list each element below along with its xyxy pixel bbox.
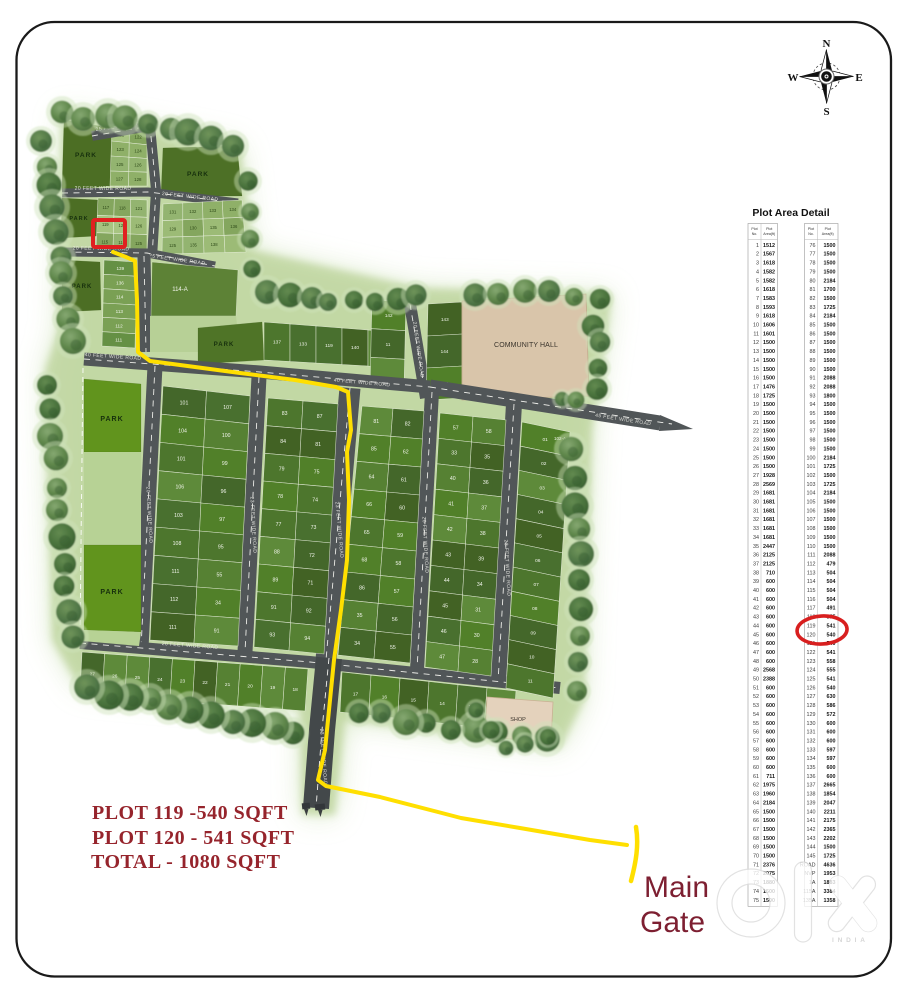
svg-text:26: 26 bbox=[753, 464, 759, 470]
svg-text:491: 491 bbox=[827, 606, 836, 612]
svg-text:6: 6 bbox=[756, 287, 759, 293]
svg-text:74: 74 bbox=[312, 497, 318, 503]
svg-text:600: 600 bbox=[766, 623, 775, 629]
svg-text:2376: 2376 bbox=[763, 862, 775, 868]
svg-text:92: 92 bbox=[810, 385, 816, 391]
svg-text:1601: 1601 bbox=[763, 331, 775, 337]
svg-text:62: 62 bbox=[403, 449, 409, 455]
svg-text:34: 34 bbox=[354, 641, 360, 647]
svg-text:479: 479 bbox=[827, 562, 836, 568]
svg-text:16: 16 bbox=[753, 376, 759, 382]
svg-text:63: 63 bbox=[753, 792, 759, 798]
svg-text:93: 93 bbox=[810, 393, 816, 399]
svg-text:1681: 1681 bbox=[763, 535, 775, 541]
svg-text:47: 47 bbox=[753, 650, 759, 656]
svg-text:121: 121 bbox=[135, 206, 143, 211]
svg-text:600: 600 bbox=[827, 765, 836, 771]
svg-text:600: 600 bbox=[766, 579, 775, 585]
svg-text:101: 101 bbox=[807, 464, 816, 470]
svg-text:28: 28 bbox=[753, 482, 759, 488]
svg-text:07: 07 bbox=[534, 582, 540, 588]
svg-text:710: 710 bbox=[766, 570, 775, 576]
svg-text:130: 130 bbox=[190, 226, 198, 231]
svg-text:600: 600 bbox=[827, 739, 836, 745]
svg-text:08: 08 bbox=[532, 606, 538, 612]
svg-text:102: 102 bbox=[807, 473, 816, 479]
svg-text:101: 101 bbox=[180, 400, 189, 406]
svg-text:504: 504 bbox=[827, 570, 836, 576]
svg-text:11: 11 bbox=[528, 679, 533, 685]
svg-text:600: 600 bbox=[766, 703, 775, 709]
svg-text:PARK: PARK bbox=[75, 152, 97, 159]
svg-text:11: 11 bbox=[386, 342, 391, 347]
svg-text:2568: 2568 bbox=[763, 668, 775, 674]
svg-text:2569: 2569 bbox=[763, 482, 775, 488]
svg-text:44: 44 bbox=[444, 578, 450, 584]
svg-text:572: 572 bbox=[827, 712, 836, 718]
svg-text:1725: 1725 bbox=[763, 393, 775, 399]
svg-text:2184: 2184 bbox=[824, 455, 836, 461]
svg-text:35: 35 bbox=[753, 544, 759, 550]
svg-text:1606: 1606 bbox=[763, 323, 775, 329]
svg-text:1500: 1500 bbox=[763, 809, 775, 815]
svg-text:1960: 1960 bbox=[763, 792, 775, 798]
svg-text:19: 19 bbox=[270, 685, 276, 691]
svg-text:54: 54 bbox=[753, 712, 759, 718]
svg-text:1500: 1500 bbox=[763, 845, 775, 851]
svg-text:104: 104 bbox=[807, 491, 816, 497]
svg-text:1500: 1500 bbox=[824, 402, 836, 408]
svg-text:2388: 2388 bbox=[763, 677, 775, 683]
svg-text:130: 130 bbox=[807, 721, 816, 727]
svg-text:61: 61 bbox=[401, 477, 407, 483]
svg-text:112: 112 bbox=[170, 597, 178, 603]
svg-text:131: 131 bbox=[169, 210, 177, 215]
svg-text:34: 34 bbox=[753, 535, 759, 541]
svg-text:57: 57 bbox=[753, 739, 759, 745]
svg-text:69: 69 bbox=[753, 845, 759, 851]
svg-text:PARK: PARK bbox=[69, 216, 88, 222]
svg-text:600: 600 bbox=[766, 685, 775, 691]
svg-text:135: 135 bbox=[807, 765, 816, 771]
svg-text:117: 117 bbox=[807, 606, 816, 612]
svg-text:71: 71 bbox=[308, 581, 314, 587]
svg-text:1500: 1500 bbox=[763, 438, 775, 444]
svg-text:11: 11 bbox=[753, 331, 759, 337]
svg-text:28: 28 bbox=[472, 659, 478, 665]
svg-text:33: 33 bbox=[753, 526, 759, 532]
svg-text:80: 80 bbox=[810, 278, 816, 284]
svg-text:1681: 1681 bbox=[763, 526, 775, 532]
svg-text:92: 92 bbox=[306, 608, 312, 614]
svg-text:84: 84 bbox=[280, 439, 286, 445]
svg-text:106: 106 bbox=[807, 508, 816, 514]
svg-text:127: 127 bbox=[116, 177, 124, 182]
svg-text:56: 56 bbox=[753, 730, 759, 736]
svg-text:PARK: PARK bbox=[100, 416, 123, 423]
svg-text:2184: 2184 bbox=[824, 278, 836, 284]
svg-text:99: 99 bbox=[222, 461, 228, 467]
svg-text:1500: 1500 bbox=[824, 296, 836, 302]
svg-text:123: 123 bbox=[117, 147, 125, 152]
svg-text:586: 586 bbox=[827, 703, 836, 709]
svg-text:59: 59 bbox=[753, 756, 759, 762]
svg-text:95: 95 bbox=[218, 545, 224, 551]
svg-text:105: 105 bbox=[807, 500, 816, 506]
svg-text:133: 133 bbox=[209, 208, 217, 213]
svg-text:97: 97 bbox=[219, 517, 225, 523]
svg-text:7: 7 bbox=[756, 296, 759, 302]
svg-text:75: 75 bbox=[314, 470, 320, 476]
svg-text:SHOP: SHOP bbox=[510, 717, 526, 723]
svg-text:44: 44 bbox=[753, 623, 759, 629]
svg-text:85: 85 bbox=[371, 447, 377, 453]
svg-text:113: 113 bbox=[807, 570, 816, 576]
svg-text:600: 600 bbox=[766, 632, 775, 638]
svg-text:94: 94 bbox=[304, 636, 310, 642]
svg-text:1500: 1500 bbox=[824, 446, 836, 452]
svg-text:119: 119 bbox=[807, 623, 816, 629]
svg-text:Plot: Plot bbox=[766, 227, 772, 231]
svg-text:02: 02 bbox=[541, 461, 547, 467]
svg-text:58: 58 bbox=[486, 429, 492, 435]
svg-text:600: 600 bbox=[766, 588, 775, 594]
svg-text:85: 85 bbox=[810, 323, 816, 329]
svg-text:100: 100 bbox=[807, 455, 816, 461]
svg-text:1500: 1500 bbox=[763, 420, 775, 426]
svg-text:112: 112 bbox=[807, 562, 816, 568]
svg-text:87: 87 bbox=[317, 414, 323, 420]
svg-text:55: 55 bbox=[217, 573, 223, 579]
svg-text:56: 56 bbox=[392, 617, 398, 623]
svg-text:66: 66 bbox=[366, 502, 372, 508]
svg-text:135: 135 bbox=[210, 225, 218, 230]
svg-text:57: 57 bbox=[453, 425, 459, 431]
svg-text:2047: 2047 bbox=[824, 800, 836, 806]
svg-text:2125: 2125 bbox=[763, 553, 775, 559]
svg-text:1500: 1500 bbox=[824, 269, 836, 275]
svg-text:55: 55 bbox=[753, 721, 759, 727]
svg-text:E: E bbox=[855, 72, 862, 84]
svg-text:144: 144 bbox=[807, 845, 816, 851]
svg-text:1500: 1500 bbox=[824, 473, 836, 479]
svg-text:143: 143 bbox=[441, 317, 449, 322]
svg-text:1500: 1500 bbox=[763, 836, 775, 842]
svg-text:4: 4 bbox=[756, 269, 759, 275]
svg-text:61: 61 bbox=[753, 774, 759, 780]
svg-text:1500: 1500 bbox=[824, 349, 836, 355]
svg-text:86: 86 bbox=[810, 331, 816, 337]
svg-text:541: 541 bbox=[827, 623, 836, 629]
svg-text:2184: 2184 bbox=[824, 491, 836, 497]
svg-text:47: 47 bbox=[439, 654, 445, 660]
svg-text:117: 117 bbox=[103, 205, 110, 210]
svg-text:20 FEET WIDE ROAD: 20 FEET WIDE ROAD bbox=[75, 186, 132, 192]
svg-text:1500: 1500 bbox=[824, 508, 836, 514]
svg-text:111: 111 bbox=[807, 553, 815, 559]
svg-text:20: 20 bbox=[247, 684, 253, 690]
svg-text:40: 40 bbox=[753, 588, 759, 594]
svg-text:114: 114 bbox=[807, 579, 816, 585]
svg-text:127: 127 bbox=[807, 694, 816, 700]
svg-text:124: 124 bbox=[807, 668, 816, 674]
svg-text:108: 108 bbox=[173, 541, 182, 547]
svg-text:76: 76 bbox=[810, 243, 816, 249]
svg-text:1500: 1500 bbox=[824, 517, 836, 523]
svg-text:141: 141 bbox=[807, 818, 816, 824]
svg-text:100: 100 bbox=[222, 433, 231, 439]
svg-text:558: 558 bbox=[827, 659, 836, 665]
svg-text:504: 504 bbox=[827, 597, 836, 603]
svg-text:INDIA: INDIA bbox=[832, 937, 869, 944]
svg-text:22: 22 bbox=[202, 680, 208, 686]
svg-text:34: 34 bbox=[477, 582, 483, 588]
svg-text:600: 600 bbox=[766, 765, 775, 771]
svg-text:1618: 1618 bbox=[763, 287, 775, 293]
svg-text:1500: 1500 bbox=[763, 376, 775, 382]
svg-text:21: 21 bbox=[753, 420, 759, 426]
svg-text:1854: 1854 bbox=[824, 792, 836, 798]
svg-text:43: 43 bbox=[753, 615, 759, 621]
svg-text:20: 20 bbox=[753, 411, 759, 417]
svg-text:1725: 1725 bbox=[824, 854, 836, 860]
svg-text:23: 23 bbox=[180, 678, 186, 684]
svg-text:1567: 1567 bbox=[763, 252, 775, 258]
svg-text:1500: 1500 bbox=[824, 429, 836, 435]
svg-text:39: 39 bbox=[478, 557, 484, 563]
svg-text:PARK: PARK bbox=[100, 589, 123, 596]
svg-text:Plot: Plot bbox=[808, 227, 814, 231]
svg-text:139: 139 bbox=[807, 800, 816, 806]
svg-text:1358: 1358 bbox=[824, 898, 836, 904]
svg-text:S: S bbox=[823, 106, 829, 118]
svg-text:128: 128 bbox=[134, 177, 142, 182]
svg-text:68: 68 bbox=[753, 836, 759, 842]
svg-text:57: 57 bbox=[394, 589, 400, 595]
svg-text:38: 38 bbox=[753, 570, 759, 576]
svg-text:1500: 1500 bbox=[763, 367, 775, 373]
svg-text:134: 134 bbox=[229, 207, 237, 212]
svg-text:600: 600 bbox=[766, 730, 775, 736]
svg-text:2125: 2125 bbox=[763, 562, 775, 568]
svg-text:Plot Area Detail: Plot Area Detail bbox=[752, 207, 829, 219]
svg-text:N: N bbox=[823, 38, 831, 50]
svg-text:1500: 1500 bbox=[763, 446, 775, 452]
svg-text:Plot: Plot bbox=[825, 227, 831, 231]
svg-text:1500: 1500 bbox=[824, 500, 836, 506]
svg-text:94: 94 bbox=[810, 402, 816, 408]
svg-text:600: 600 bbox=[766, 721, 775, 727]
svg-text:142: 142 bbox=[807, 827, 816, 833]
svg-text:1500: 1500 bbox=[763, 429, 775, 435]
svg-text:2088: 2088 bbox=[824, 376, 836, 382]
svg-text:72: 72 bbox=[309, 553, 315, 559]
svg-text:38: 38 bbox=[480, 531, 486, 537]
svg-text:1500: 1500 bbox=[763, 854, 775, 860]
svg-text:74: 74 bbox=[753, 889, 759, 895]
svg-text:51: 51 bbox=[753, 685, 759, 691]
svg-text:1582: 1582 bbox=[763, 269, 775, 275]
svg-text:1725: 1725 bbox=[824, 482, 836, 488]
svg-text:50: 50 bbox=[753, 677, 759, 683]
svg-text:138: 138 bbox=[807, 792, 816, 798]
svg-text:1500: 1500 bbox=[763, 340, 775, 346]
svg-text:600: 600 bbox=[766, 756, 775, 762]
svg-text:30: 30 bbox=[753, 500, 759, 506]
svg-text:600: 600 bbox=[827, 774, 836, 780]
svg-text:04: 04 bbox=[538, 509, 544, 515]
svg-text:23: 23 bbox=[753, 438, 759, 444]
svg-text:35: 35 bbox=[484, 454, 490, 460]
svg-text:36: 36 bbox=[753, 553, 759, 559]
svg-text:17: 17 bbox=[353, 691, 359, 697]
svg-text:18: 18 bbox=[753, 393, 759, 399]
svg-text:10: 10 bbox=[753, 323, 759, 329]
svg-text:43: 43 bbox=[445, 553, 451, 559]
svg-text:136: 136 bbox=[230, 224, 238, 229]
svg-text:65: 65 bbox=[753, 809, 759, 815]
svg-text:1953: 1953 bbox=[824, 871, 836, 877]
svg-text:01: 01 bbox=[543, 437, 549, 443]
svg-text:1500: 1500 bbox=[763, 464, 775, 470]
svg-text:27: 27 bbox=[753, 473, 759, 479]
svg-text:2088: 2088 bbox=[824, 385, 836, 391]
svg-text:88: 88 bbox=[810, 349, 816, 355]
svg-text:129: 129 bbox=[807, 712, 816, 718]
svg-text:86: 86 bbox=[359, 585, 365, 591]
svg-text:597: 597 bbox=[827, 747, 836, 753]
svg-text:140: 140 bbox=[807, 809, 816, 815]
svg-text:64: 64 bbox=[369, 474, 375, 480]
svg-text:Area(ft): Area(ft) bbox=[822, 232, 834, 236]
svg-text:1500: 1500 bbox=[824, 845, 836, 851]
svg-text:1500: 1500 bbox=[763, 349, 775, 355]
svg-text:5: 5 bbox=[756, 278, 759, 284]
svg-text:59: 59 bbox=[397, 533, 403, 539]
svg-text:1500: 1500 bbox=[824, 358, 836, 364]
svg-text:1618: 1618 bbox=[763, 314, 775, 320]
svg-text:No.: No. bbox=[808, 232, 814, 236]
svg-text:128: 128 bbox=[807, 703, 816, 709]
svg-text:600: 600 bbox=[766, 694, 775, 700]
svg-text:2447: 2447 bbox=[763, 544, 775, 550]
svg-text:600: 600 bbox=[766, 659, 775, 665]
svg-text:107: 107 bbox=[223, 405, 232, 411]
svg-text:58: 58 bbox=[753, 747, 759, 753]
svg-text:143: 143 bbox=[807, 836, 816, 842]
svg-text:108: 108 bbox=[807, 526, 816, 532]
svg-text:42: 42 bbox=[753, 606, 759, 612]
svg-text:1593: 1593 bbox=[763, 305, 775, 311]
svg-text:119: 119 bbox=[325, 343, 333, 349]
svg-text:134: 134 bbox=[807, 756, 816, 762]
svg-text:120: 120 bbox=[807, 632, 816, 638]
svg-text:45: 45 bbox=[442, 603, 448, 609]
svg-text:09: 09 bbox=[531, 630, 537, 636]
svg-text:1500: 1500 bbox=[824, 411, 836, 417]
svg-text:Gate: Gate bbox=[640, 906, 705, 939]
svg-text:83: 83 bbox=[282, 411, 288, 417]
svg-text:600: 600 bbox=[766, 650, 775, 656]
svg-text:115: 115 bbox=[101, 240, 108, 245]
svg-text:132: 132 bbox=[189, 209, 197, 214]
svg-text:600: 600 bbox=[766, 606, 775, 612]
svg-text:600: 600 bbox=[766, 597, 775, 603]
svg-text:60: 60 bbox=[399, 505, 405, 511]
svg-text:1500: 1500 bbox=[763, 402, 775, 408]
svg-text:2088: 2088 bbox=[824, 553, 836, 559]
svg-text:1582: 1582 bbox=[763, 278, 775, 284]
svg-text:107: 107 bbox=[807, 517, 816, 523]
svg-text:1681: 1681 bbox=[763, 508, 775, 514]
svg-text:124: 124 bbox=[134, 149, 142, 154]
svg-text:540: 540 bbox=[827, 685, 836, 691]
svg-text:139: 139 bbox=[116, 266, 124, 271]
svg-text:113: 113 bbox=[116, 309, 124, 314]
svg-text:630: 630 bbox=[827, 694, 836, 700]
svg-text:1500: 1500 bbox=[763, 411, 775, 417]
svg-text:2365: 2365 bbox=[824, 827, 836, 833]
svg-text:1725: 1725 bbox=[824, 464, 836, 470]
svg-text:81: 81 bbox=[810, 287, 816, 293]
svg-text:711: 711 bbox=[766, 774, 775, 780]
svg-text:101: 101 bbox=[177, 457, 186, 463]
svg-text:2184: 2184 bbox=[824, 314, 836, 320]
svg-text:06: 06 bbox=[535, 558, 541, 564]
svg-text:103: 103 bbox=[174, 513, 183, 519]
svg-text:Area(ft): Area(ft) bbox=[763, 232, 775, 236]
svg-text:1500: 1500 bbox=[763, 358, 775, 364]
svg-text:2211: 2211 bbox=[824, 809, 836, 815]
svg-text:66: 66 bbox=[753, 818, 759, 824]
svg-text:125: 125 bbox=[135, 241, 143, 246]
svg-text:62: 62 bbox=[753, 783, 759, 789]
svg-text:95: 95 bbox=[810, 411, 816, 417]
svg-text:87: 87 bbox=[810, 340, 816, 346]
svg-text:70: 70 bbox=[753, 854, 759, 860]
svg-text:600: 600 bbox=[766, 712, 775, 718]
svg-text:1476: 1476 bbox=[763, 385, 775, 391]
svg-text:1681: 1681 bbox=[763, 491, 775, 497]
svg-text:93: 93 bbox=[269, 633, 275, 639]
svg-text:45: 45 bbox=[753, 632, 759, 638]
svg-text:05: 05 bbox=[537, 534, 543, 540]
svg-text:89: 89 bbox=[810, 358, 816, 364]
svg-text:96: 96 bbox=[810, 420, 816, 426]
svg-text:109: 109 bbox=[807, 535, 816, 541]
svg-text:106: 106 bbox=[175, 485, 184, 491]
svg-text:64: 64 bbox=[753, 800, 759, 806]
svg-text:1500: 1500 bbox=[763, 455, 775, 461]
svg-text:35: 35 bbox=[357, 613, 363, 619]
svg-text:21: 21 bbox=[225, 682, 231, 688]
svg-text:89: 89 bbox=[273, 577, 279, 583]
svg-text:1500: 1500 bbox=[824, 261, 836, 267]
svg-text:14: 14 bbox=[440, 701, 446, 707]
svg-text:10: 10 bbox=[529, 655, 535, 661]
svg-text:125: 125 bbox=[116, 162, 124, 167]
svg-text:8: 8 bbox=[756, 305, 759, 311]
svg-text:600: 600 bbox=[766, 747, 775, 753]
svg-text:15: 15 bbox=[411, 698, 417, 704]
svg-text:41: 41 bbox=[448, 502, 454, 508]
svg-text:2175: 2175 bbox=[824, 818, 836, 824]
svg-text:79: 79 bbox=[810, 269, 816, 275]
svg-text:48: 48 bbox=[753, 659, 759, 665]
svg-text:126: 126 bbox=[807, 685, 816, 691]
svg-text:31: 31 bbox=[475, 608, 481, 614]
svg-text:46: 46 bbox=[753, 641, 759, 647]
